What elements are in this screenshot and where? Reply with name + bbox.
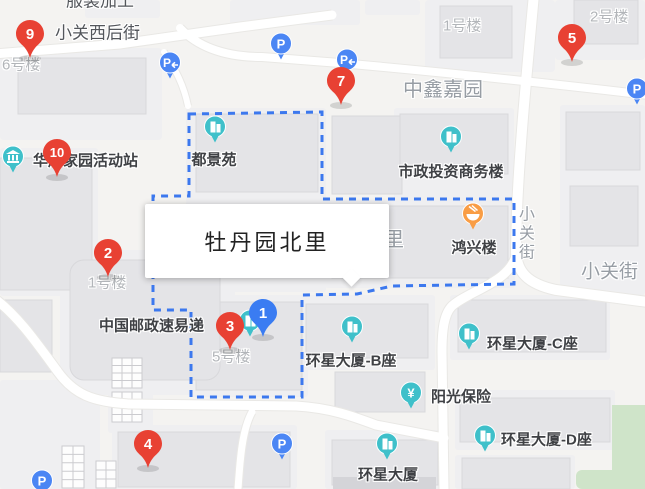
result-marker-9[interactable]: 9 [15, 19, 45, 59]
parking-icon-entrance[interactable]: P [158, 52, 182, 87]
poi-label[interactable]: 环星大厦-B座 [306, 354, 397, 369]
building-icon[interactable] [439, 126, 463, 161]
svg-text:2: 2 [104, 245, 112, 262]
poi-label[interactable]: 环星大厦 [358, 468, 418, 483]
parking-icon[interactable]: P [625, 78, 645, 113]
parking-icon[interactable]: P [30, 470, 54, 489]
svg-text:10: 10 [50, 145, 64, 160]
parking-icon[interactable]: P [269, 33, 293, 68]
map-text-label: 小关街 [516, 206, 532, 263]
svg-text:P: P [277, 36, 286, 51]
result-marker-1[interactable]: 1 [248, 298, 278, 338]
svg-text:9: 9 [26, 26, 34, 43]
svg-text:¥: ¥ [407, 386, 415, 401]
place-name-label: 牡丹园北里 [200, 225, 333, 257]
building-icon[interactable] [473, 425, 497, 460]
result-marker-10[interactable]: 10 [42, 138, 72, 178]
building-icon[interactable] [340, 316, 364, 351]
svg-text:5: 5 [568, 30, 576, 47]
svg-text:P: P [340, 53, 348, 67]
svg-text:4: 4 [144, 436, 153, 453]
poi-label[interactable]: 都景苑 [191, 153, 236, 168]
map-text-label: 小关街 [581, 263, 638, 282]
result-marker-7[interactable]: 7 [326, 66, 356, 106]
map-text-label: 中鑫嘉园 [403, 80, 483, 100]
poi-label[interactable]: 环星大厦-C座 [487, 337, 578, 352]
result-marker-3[interactable]: 3 [215, 311, 245, 351]
result-marker-4[interactable]: 4 [133, 429, 163, 469]
building-icon[interactable] [457, 323, 481, 358]
poi-label[interactable]: 鸿兴楼 [451, 241, 496, 256]
svg-text:P: P [278, 436, 287, 451]
svg-text:P: P [163, 56, 171, 70]
poi-label[interactable]: 市政投资商务楼 [398, 165, 503, 180]
result-marker-5[interactable]: 5 [557, 23, 587, 63]
svg-text:P: P [38, 473, 47, 488]
map-text-label: 服装加工 [66, 0, 134, 10]
food-icon[interactable] [461, 203, 485, 238]
poi-label[interactable]: 阳光保险 [431, 390, 491, 405]
svg-text:1: 1 [259, 305, 267, 322]
result-marker-2[interactable]: 2 [93, 238, 123, 278]
building-icon[interactable] [203, 116, 227, 151]
parking-icon[interactable]: P [270, 433, 294, 468]
svg-text:P: P [633, 81, 642, 96]
map-text-label: 2号楼 [590, 10, 628, 25]
museum-icon[interactable] [1, 146, 25, 181]
poi-label[interactable]: 环星大厦-D座 [501, 433, 592, 448]
poi-label[interactable]: 中国邮政速易递 [99, 319, 204, 334]
map-text-label: 1号楼 [443, 19, 481, 34]
place-infowindow[interactable]: 牡丹园北里 [145, 204, 389, 278]
yen-icon[interactable]: ¥ [399, 382, 423, 417]
map-canvas[interactable]: 服装加工小关西后街6号楼1号楼2号楼中鑫嘉园里小关街小关街1号楼5号楼华严家园活… [0, 0, 645, 489]
building-icon[interactable] [375, 433, 399, 468]
map-text-label: 小关西后街 [55, 25, 140, 42]
svg-text:3: 3 [226, 318, 234, 335]
svg-text:7: 7 [337, 73, 345, 90]
